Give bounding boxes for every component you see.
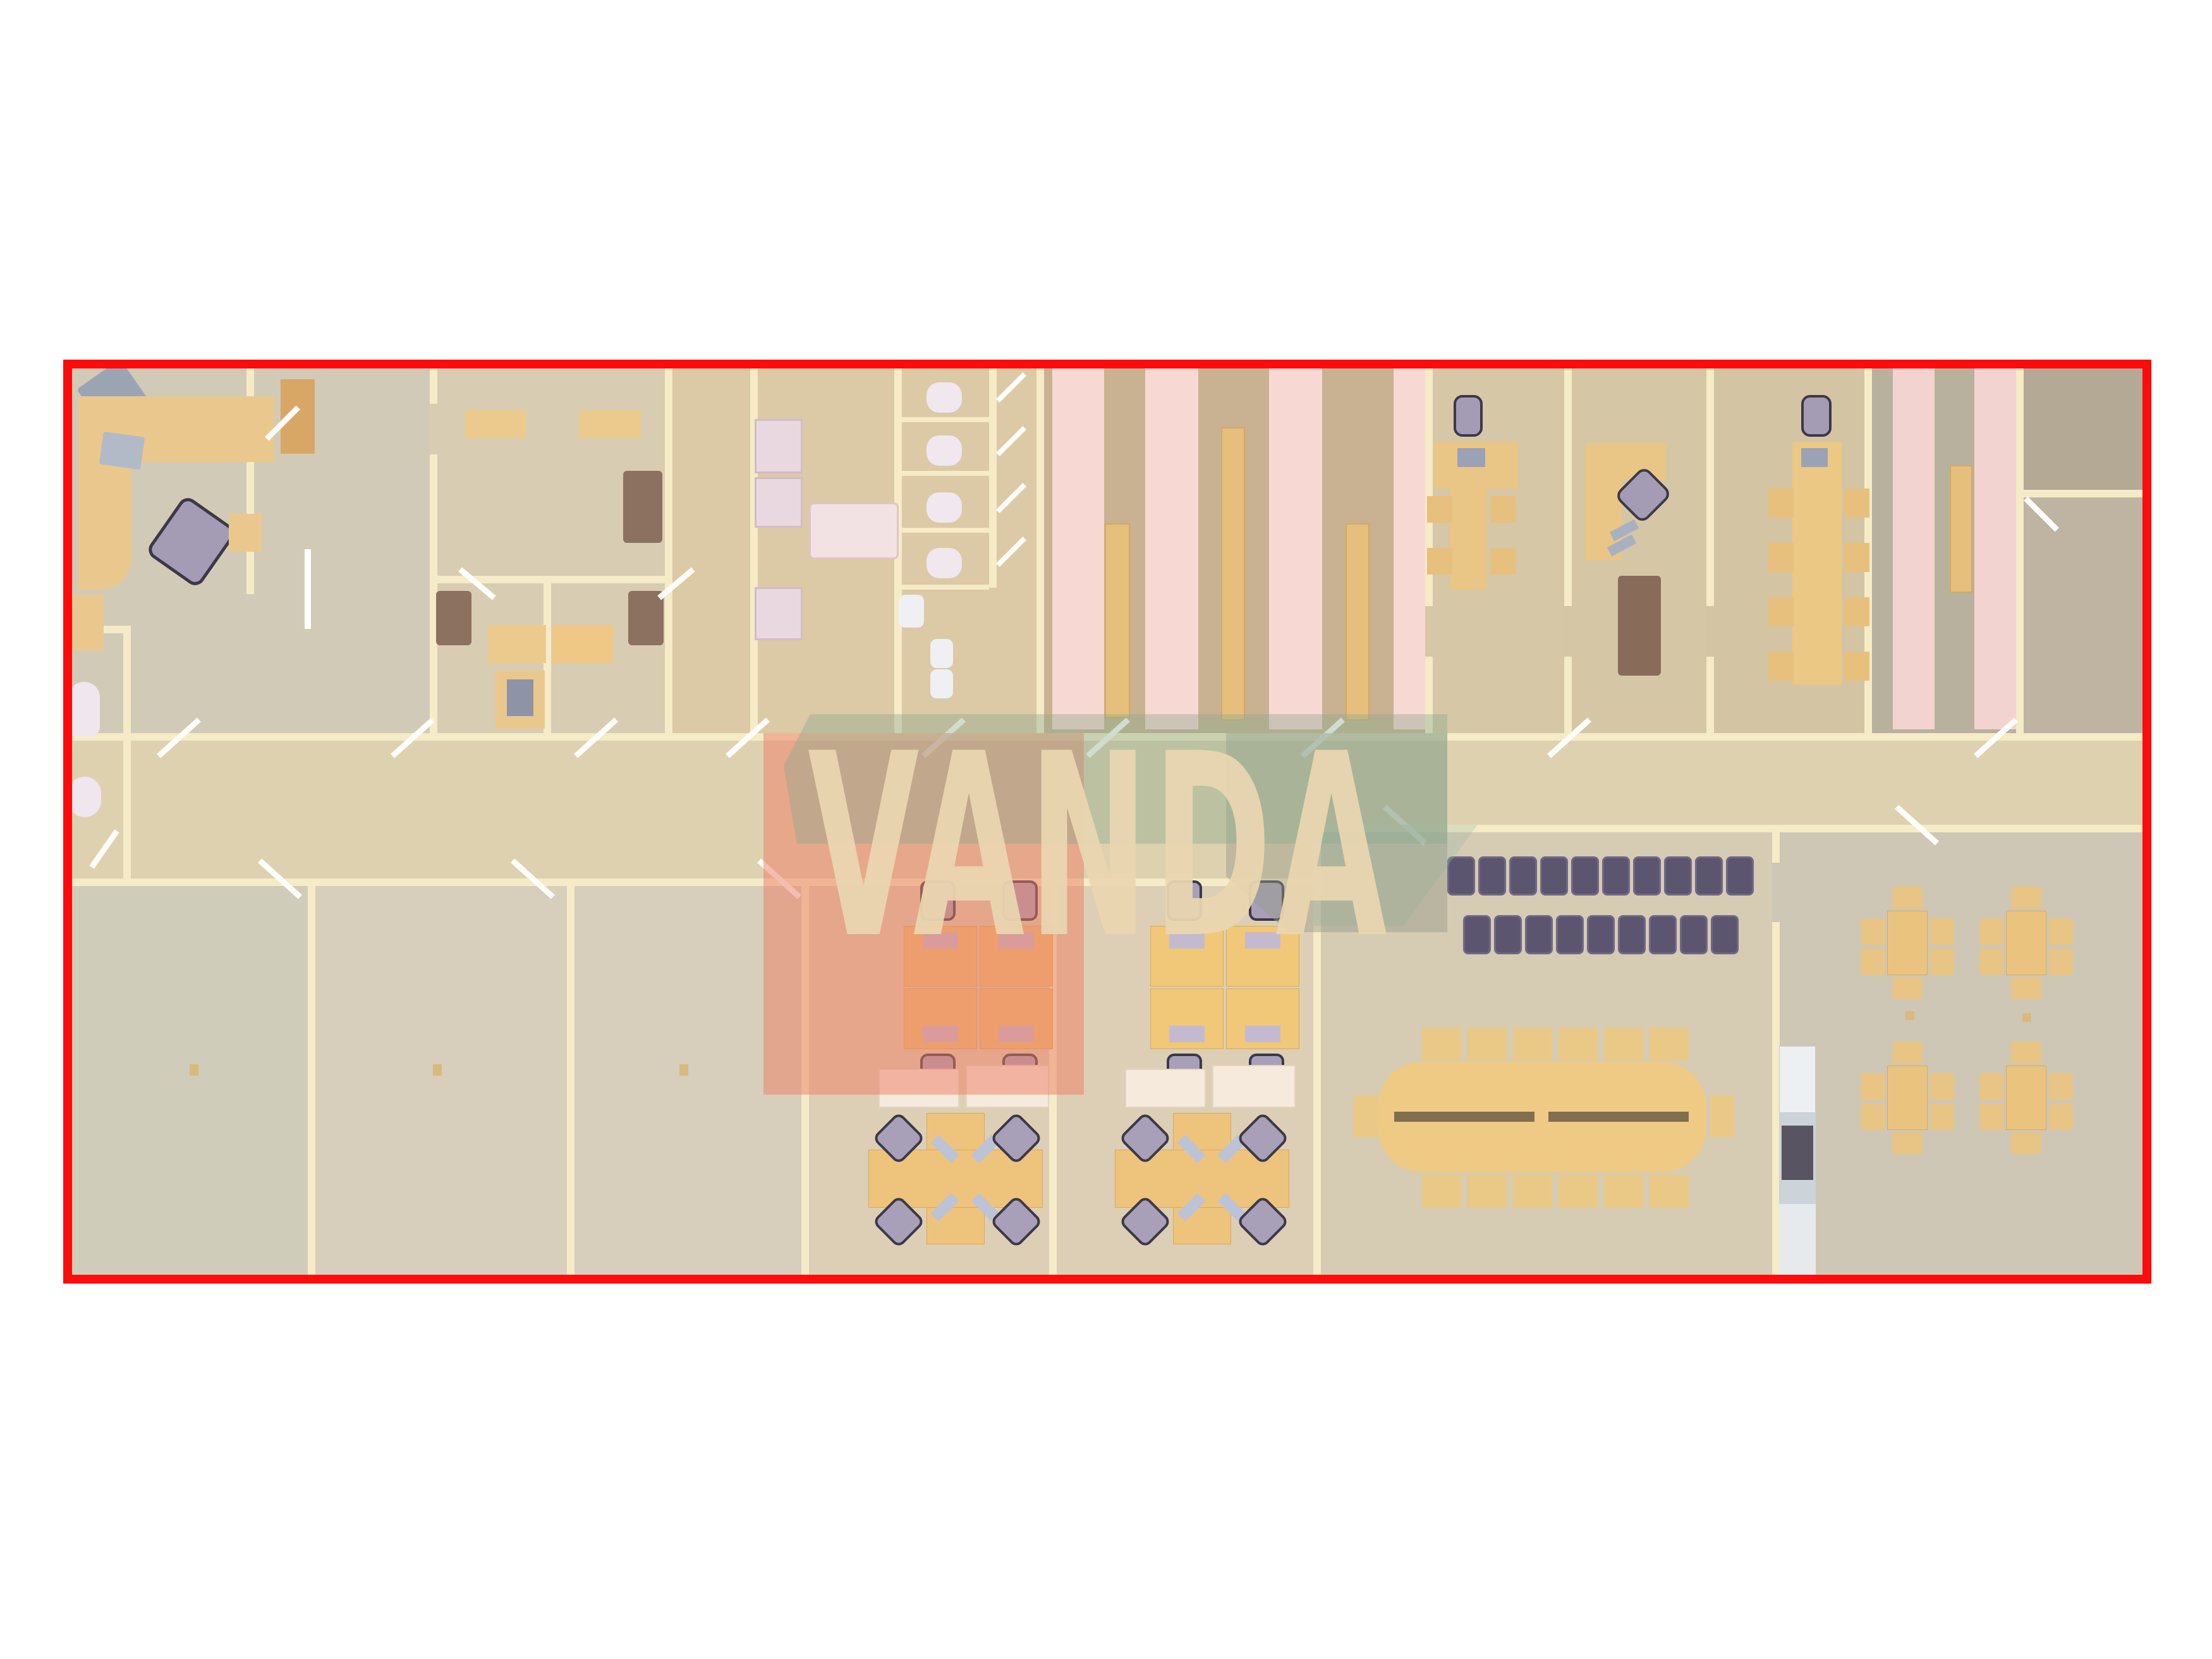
dining-table	[1887, 911, 1928, 975]
floor-plan-render: VANDA	[63, 360, 2151, 1284]
room-empty-2-floor	[308, 878, 567, 1275]
auditorium-chair	[1649, 915, 1677, 954]
bathtub	[809, 502, 899, 559]
wall	[989, 360, 997, 588]
guest-chair	[1844, 489, 1869, 518]
auditorium-chair	[1633, 856, 1661, 896]
guest-chair	[1427, 496, 1452, 523]
office-chair	[1801, 395, 1832, 437]
auditorium-chair	[1680, 915, 1708, 954]
shelf-stripe	[1974, 363, 2016, 729]
dining-chair	[1930, 918, 1954, 945]
bench	[1346, 523, 1370, 720]
auditorium-chair	[1726, 856, 1754, 896]
credenza	[1212, 1065, 1296, 1108]
lounge-table	[488, 625, 546, 663]
auditorium-chair	[1695, 856, 1723, 896]
conference-chair	[1468, 1028, 1507, 1060]
guest-chair	[1490, 496, 1516, 523]
desk	[1450, 489, 1486, 590]
watermark-text: VANDA	[808, 721, 1390, 974]
auditorium-chair	[1664, 856, 1692, 896]
conference-chair	[1513, 1028, 1552, 1060]
wall	[1036, 360, 1044, 733]
door-stop	[190, 1064, 198, 1076]
guest-chair	[1768, 489, 1794, 518]
office-chair	[1454, 395, 1483, 437]
sofa	[628, 591, 664, 645]
conference-chair	[1354, 1095, 1378, 1137]
wall	[430, 360, 437, 404]
conference-table-slot	[1394, 1112, 1534, 1122]
auditorium-chair	[1463, 915, 1491, 954]
shower-stall	[755, 477, 803, 528]
wall	[665, 360, 672, 733]
guest-chair	[1844, 543, 1869, 572]
conference-chair	[1422, 1175, 1461, 1208]
shower-stall	[755, 587, 803, 640]
dining-chair	[2049, 1073, 2073, 1100]
meeting-table	[1792, 442, 1842, 684]
lounge-table	[552, 625, 613, 663]
small-desk	[229, 514, 262, 552]
conference-chair	[1559, 1028, 1598, 1060]
door-stop	[1905, 1011, 1914, 1020]
dining-table	[2006, 1066, 2046, 1130]
auditorium-chair	[1587, 915, 1615, 954]
wall	[902, 528, 989, 533]
sink	[930, 639, 953, 668]
guest-chair	[1844, 597, 1869, 626]
dining-chair	[2011, 978, 2041, 999]
wall	[123, 626, 131, 878]
auditorium-chair	[1556, 915, 1584, 954]
sofa	[623, 471, 662, 543]
dining-chair	[1861, 1103, 1885, 1130]
bidet	[68, 777, 101, 817]
toilet	[927, 492, 962, 523]
auditorium-chair	[1447, 856, 1475, 896]
dining-chair	[1979, 1103, 2003, 1130]
dining-chair	[1979, 949, 2003, 975]
wall	[1772, 825, 1780, 863]
toilet	[927, 382, 962, 413]
door-leaf	[305, 549, 311, 629]
conference-chair	[1513, 1175, 1552, 1208]
wall	[308, 878, 315, 1275]
dining-chair	[2011, 1133, 2041, 1154]
sofa	[436, 591, 471, 645]
room-office-2-floor	[1425, 360, 1564, 733]
conference-chair	[1422, 1028, 1461, 1060]
dining-chair	[1892, 978, 1923, 999]
toilet	[927, 548, 962, 578]
room-empty-1-floor	[63, 878, 308, 1275]
wall	[1564, 657, 1572, 733]
auditorium-chair	[1525, 915, 1553, 954]
monitor	[1245, 1026, 1280, 1042]
wall	[2016, 360, 2024, 733]
door-stop	[433, 1064, 442, 1076]
auditorium-chair	[1571, 856, 1599, 896]
dining-chair	[2011, 1042, 2041, 1063]
bench	[1221, 427, 1245, 720]
conference-chair	[1468, 1175, 1507, 1208]
dining-chair	[1861, 1073, 1885, 1100]
side-table	[67, 595, 104, 650]
wall	[2016, 490, 2151, 497]
guest-chair	[1768, 543, 1794, 572]
wall	[902, 471, 989, 476]
dining-chair	[2049, 1103, 2073, 1130]
conference-chair	[1559, 1175, 1598, 1208]
guest-chair	[1768, 597, 1794, 626]
dining-chair	[1861, 949, 1885, 975]
dining-chair	[1892, 887, 1923, 908]
sink	[899, 595, 924, 628]
conference-chair	[1710, 1095, 1734, 1137]
pc-monitor	[507, 679, 533, 716]
laptop	[99, 432, 145, 470]
toilet	[68, 682, 100, 736]
shelf-stripe	[1052, 363, 1104, 729]
conference-chair	[1604, 1175, 1643, 1208]
dining-chair	[2049, 918, 2073, 945]
auditorium-chair	[1540, 856, 1568, 896]
wall	[1706, 360, 1714, 606]
wall	[902, 585, 989, 590]
dining-chair	[1979, 1073, 2003, 1100]
monitor	[1801, 448, 1828, 467]
dining-chair	[1930, 1103, 1954, 1130]
dining-table	[2006, 911, 2046, 975]
conference-table-slot	[1548, 1112, 1689, 1122]
guest-chair	[1844, 652, 1869, 681]
guest-chair	[1427, 548, 1452, 574]
wall	[1706, 657, 1714, 733]
lounge-table	[465, 410, 526, 438]
auditorium-chair	[1509, 856, 1537, 896]
dining-chair	[1861, 918, 1885, 945]
lounge-table	[579, 410, 641, 438]
dining-chair	[2049, 949, 2073, 975]
door-stop	[679, 1064, 688, 1076]
shelf-stripe	[1893, 363, 1935, 729]
wall	[750, 360, 758, 733]
cafeteria-floor	[1772, 825, 2144, 1275]
conference-chair	[1650, 1028, 1689, 1060]
credenza	[1125, 1069, 1206, 1108]
wall	[246, 360, 254, 594]
shelf-stripe	[1394, 363, 1425, 729]
auditorium-chair	[1711, 915, 1739, 954]
shelf-stripe	[1269, 363, 1322, 729]
auditorium-chair	[1602, 856, 1630, 896]
toilet	[927, 435, 962, 466]
shelf-stripe	[1145, 363, 1198, 729]
sink	[930, 669, 953, 698]
guest-chair	[1768, 652, 1794, 681]
corner-desk	[78, 396, 131, 590]
auditorium-chair	[1494, 915, 1522, 954]
monitor	[1169, 1026, 1205, 1042]
dining-chair	[1930, 949, 1954, 975]
bench	[1105, 523, 1130, 718]
wall	[1564, 360, 1572, 606]
auditorium-chair	[1618, 915, 1646, 954]
room-top-right-upper-floor	[2016, 360, 2151, 490]
conference-chair	[1604, 1028, 1643, 1060]
conference-chair	[1650, 1175, 1689, 1208]
bench	[1950, 465, 1972, 593]
room-top-right-lower-floor	[2016, 490, 2151, 733]
auditorium-chair	[1478, 856, 1506, 896]
monitor	[1457, 448, 1485, 467]
wall	[567, 878, 574, 1275]
door-stop	[2022, 1013, 2031, 1022]
dining-chair	[1930, 1073, 1954, 1100]
kitchen-fridge	[1779, 1046, 1816, 1113]
cooktop	[1782, 1126, 1813, 1180]
guest-chair	[1490, 548, 1516, 574]
shower-stall	[755, 419, 803, 473]
sofa	[1618, 576, 1661, 676]
dining-chair	[1892, 1133, 1923, 1154]
dining-chair	[1892, 1042, 1923, 1063]
wall	[902, 417, 989, 422]
kitchen-counter	[1779, 1204, 1816, 1275]
dining-chair	[1979, 918, 2003, 945]
dining-chair	[2011, 887, 2041, 908]
dining-table	[1887, 1066, 1928, 1130]
